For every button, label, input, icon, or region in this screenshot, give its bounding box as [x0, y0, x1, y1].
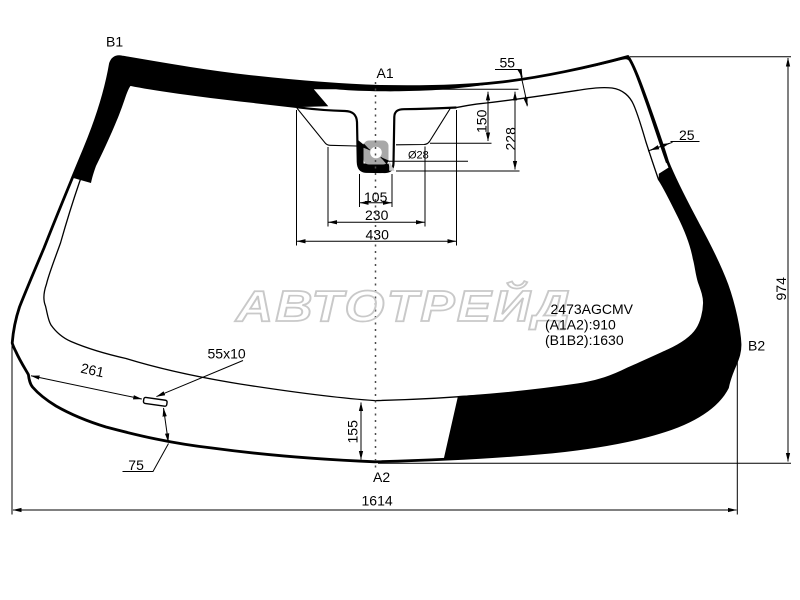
svg-text:105: 105 [364, 189, 388, 205]
svg-text:1614: 1614 [362, 493, 393, 509]
svg-text:155: 155 [345, 420, 361, 444]
svg-text:228: 228 [503, 127, 519, 151]
svg-text:A2: A2 [373, 469, 390, 485]
svg-text:55x10: 55x10 [208, 346, 246, 362]
svg-text:(B1B2):1630: (B1B2):1630 [545, 332, 624, 348]
svg-text:25: 25 [679, 127, 695, 143]
svg-text:B2: B2 [748, 338, 765, 354]
svg-text:150: 150 [474, 109, 490, 133]
svg-text:430: 430 [366, 227, 390, 243]
svg-text:Ø28: Ø28 [408, 149, 429, 161]
svg-text:974: 974 [773, 277, 789, 301]
svg-text:A1: A1 [377, 65, 394, 81]
svg-text:75: 75 [128, 457, 144, 473]
svg-text:АВТОТРЕЙД: АВТОТРЕЙД [235, 280, 572, 331]
svg-text:(A1A2):910: (A1A2):910 [545, 317, 616, 333]
svg-text:B1: B1 [106, 34, 123, 50]
svg-text:55: 55 [500, 55, 516, 71]
svg-text:230: 230 [365, 207, 389, 223]
svg-text:2473AGCMV: 2473AGCMV [551, 301, 634, 317]
